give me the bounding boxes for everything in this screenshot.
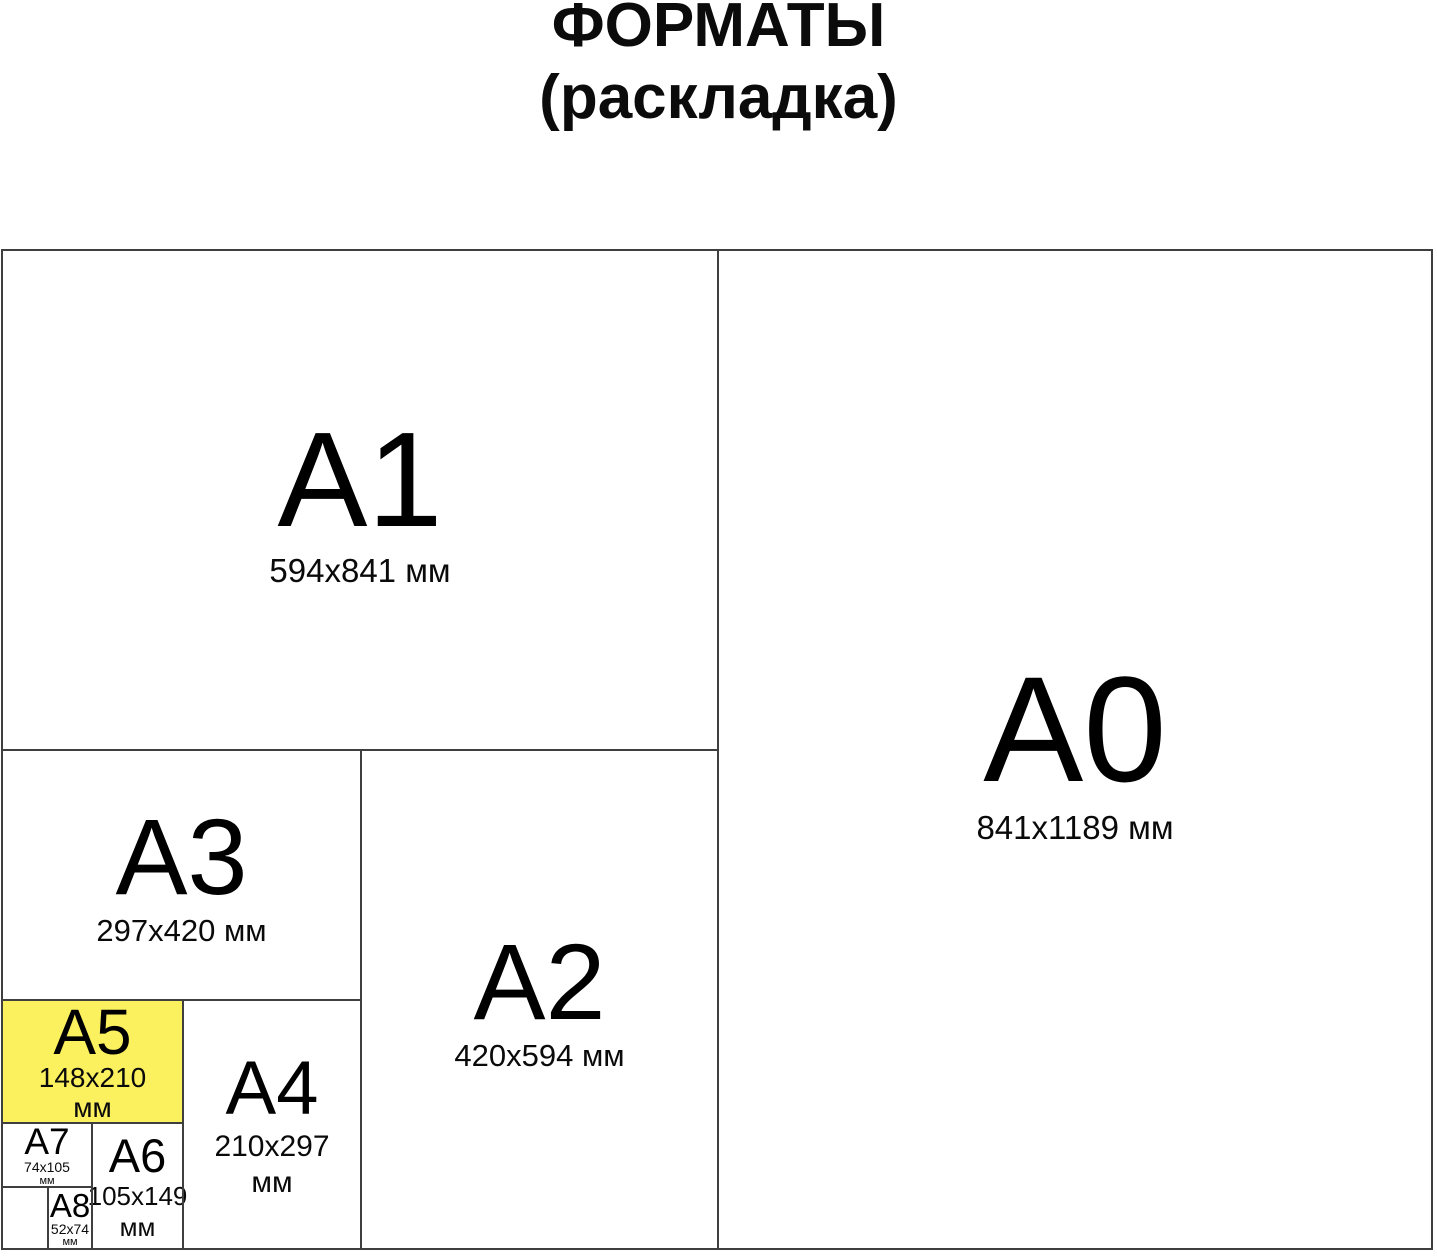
format-box-a2: A2 420x594 мм: [361, 750, 718, 1250]
format-size-a5: 148x210: [39, 1063, 146, 1093]
format-size-unit-a6: мм: [120, 1212, 156, 1243]
format-size-unit-a7: мм: [39, 1175, 54, 1187]
format-box-a7: A7 74x105 мм: [2, 1123, 92, 1187]
format-box-a8: A8 52x74 мм: [48, 1187, 92, 1250]
format-label-a7: A7: [24, 1124, 69, 1160]
format-label-a6: A6: [109, 1131, 167, 1181]
format-box-a3: A3 297x420 мм: [2, 750, 361, 1000]
format-label-a3: A3: [115, 802, 247, 912]
format-box-a5: A5 148x210 мм: [2, 1000, 183, 1123]
format-size-a4: 210x297: [214, 1129, 329, 1165]
format-size-unit-a4: мм: [251, 1165, 292, 1201]
format-box-a6: A6 105x149 мм: [92, 1123, 183, 1250]
format-label-a1: A1: [277, 412, 442, 547]
format-label-a8: A8: [50, 1190, 90, 1222]
format-size-a7: 74x105: [24, 1160, 70, 1175]
format-label-a4: A4: [226, 1049, 319, 1129]
diagram-title: ФОРМАТЫ (раскладка): [0, 0, 1437, 134]
format-size-a6: 105x149: [88, 1181, 188, 1212]
divider-a5-a4: [182, 1000, 184, 1250]
format-label-a2: A2: [473, 927, 605, 1037]
paper-formats-diagram: ФОРМАТЫ (раскладка) A1 594x841 мм A0 841…: [0, 0, 1437, 1256]
format-box-a4: A4 210x297 мм: [183, 1000, 361, 1250]
divider-a8-left: [47, 1187, 49, 1250]
format-label-a5: A5: [53, 1001, 131, 1063]
format-size-a0: 841x1189 мм: [976, 810, 1173, 846]
format-label-a0: A0: [983, 654, 1166, 804]
format-size-a8: 52x74: [51, 1222, 89, 1236]
format-size-a3: 297x420 мм: [96, 914, 266, 948]
format-size-a2: 420x594 мм: [454, 1039, 624, 1073]
diagram-title-line1: ФОРМАТЫ: [0, 0, 1437, 62]
format-size-a1: 594x841 мм: [269, 553, 450, 589]
format-size-unit-a8: мм: [62, 1236, 77, 1248]
border-outer-right: [1431, 249, 1433, 1250]
diagram-title-line2: (раскладка): [0, 62, 1437, 134]
format-size-unit-a5: мм: [73, 1093, 112, 1123]
format-box-a0: A0 841x1189 мм: [718, 250, 1432, 1250]
format-box-a1: A1 594x841 мм: [2, 250, 718, 750]
